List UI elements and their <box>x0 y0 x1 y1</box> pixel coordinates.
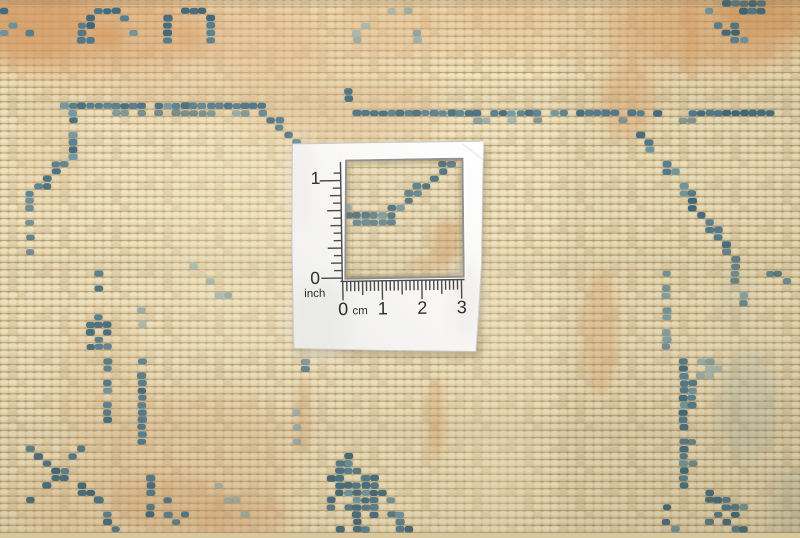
svg-text:0: 0 <box>338 299 348 319</box>
svg-text:2: 2 <box>417 298 427 318</box>
svg-text:1: 1 <box>378 298 388 318</box>
svg-text:cm: cm <box>352 305 368 317</box>
svg-text:inch: inch <box>304 288 325 300</box>
svg-text:1: 1 <box>311 168 321 188</box>
svg-text:3: 3 <box>457 297 467 317</box>
svg-text:0: 0 <box>310 268 320 288</box>
